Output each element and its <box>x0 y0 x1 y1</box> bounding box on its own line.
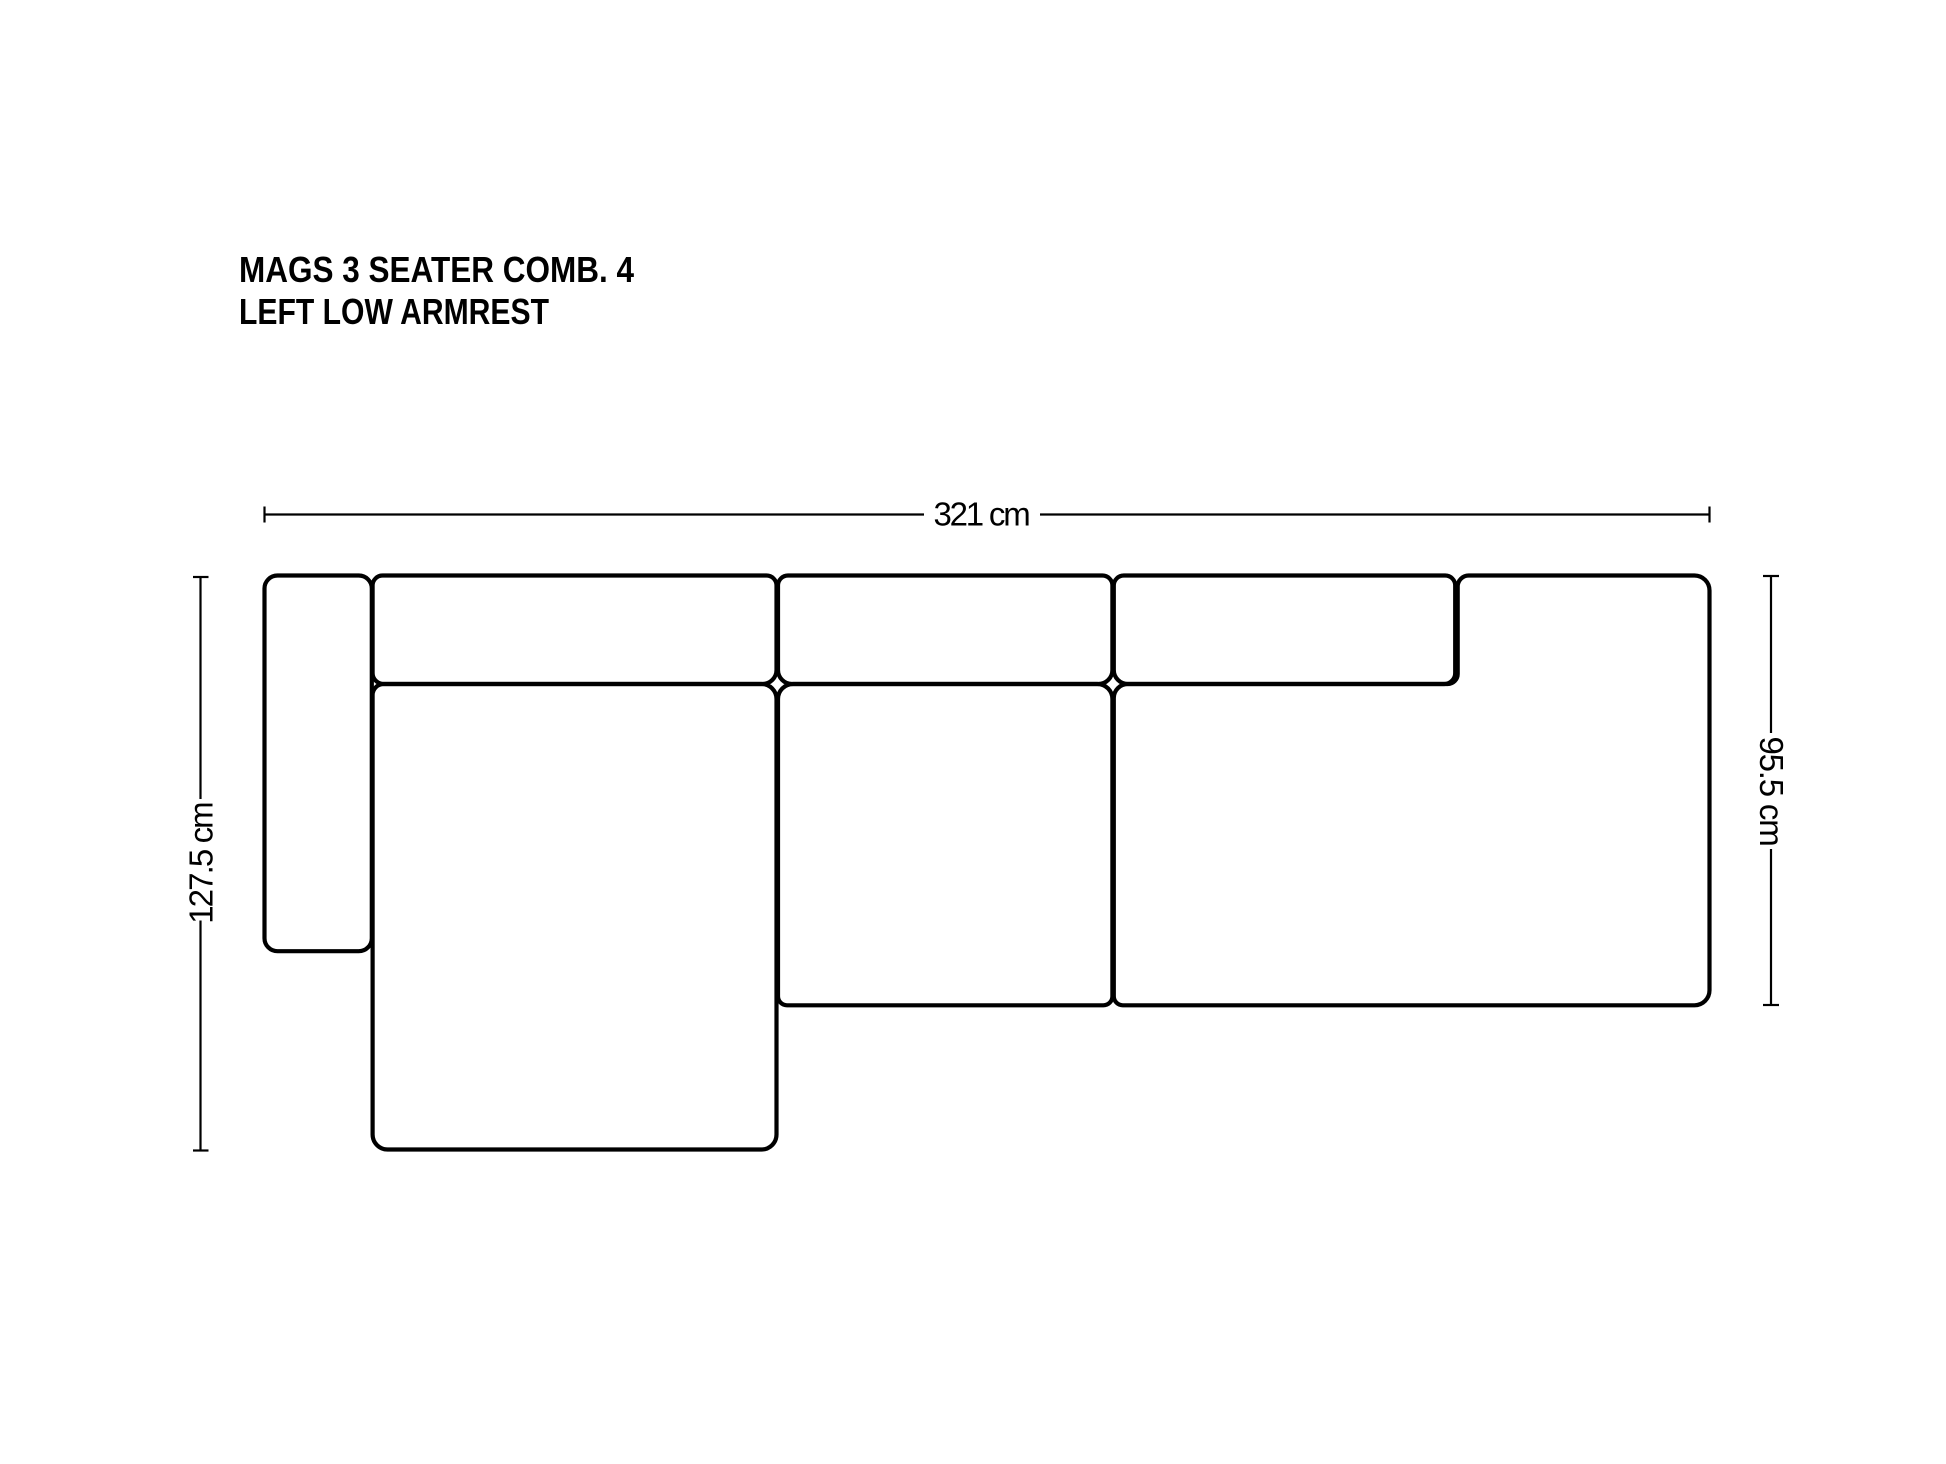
svg-text:95.5 cm: 95.5 cm <box>1753 737 1790 846</box>
svg-text:MAGS 3 SEATER COMB. 4: MAGS 3 SEATER COMB. 4 <box>239 249 634 290</box>
svg-text:127.5 cm: 127.5 cm <box>183 803 220 924</box>
svg-text:321 cm: 321 cm <box>933 496 1029 533</box>
svg-text:LEFT LOW ARMREST: LEFT LOW ARMREST <box>239 291 549 332</box>
